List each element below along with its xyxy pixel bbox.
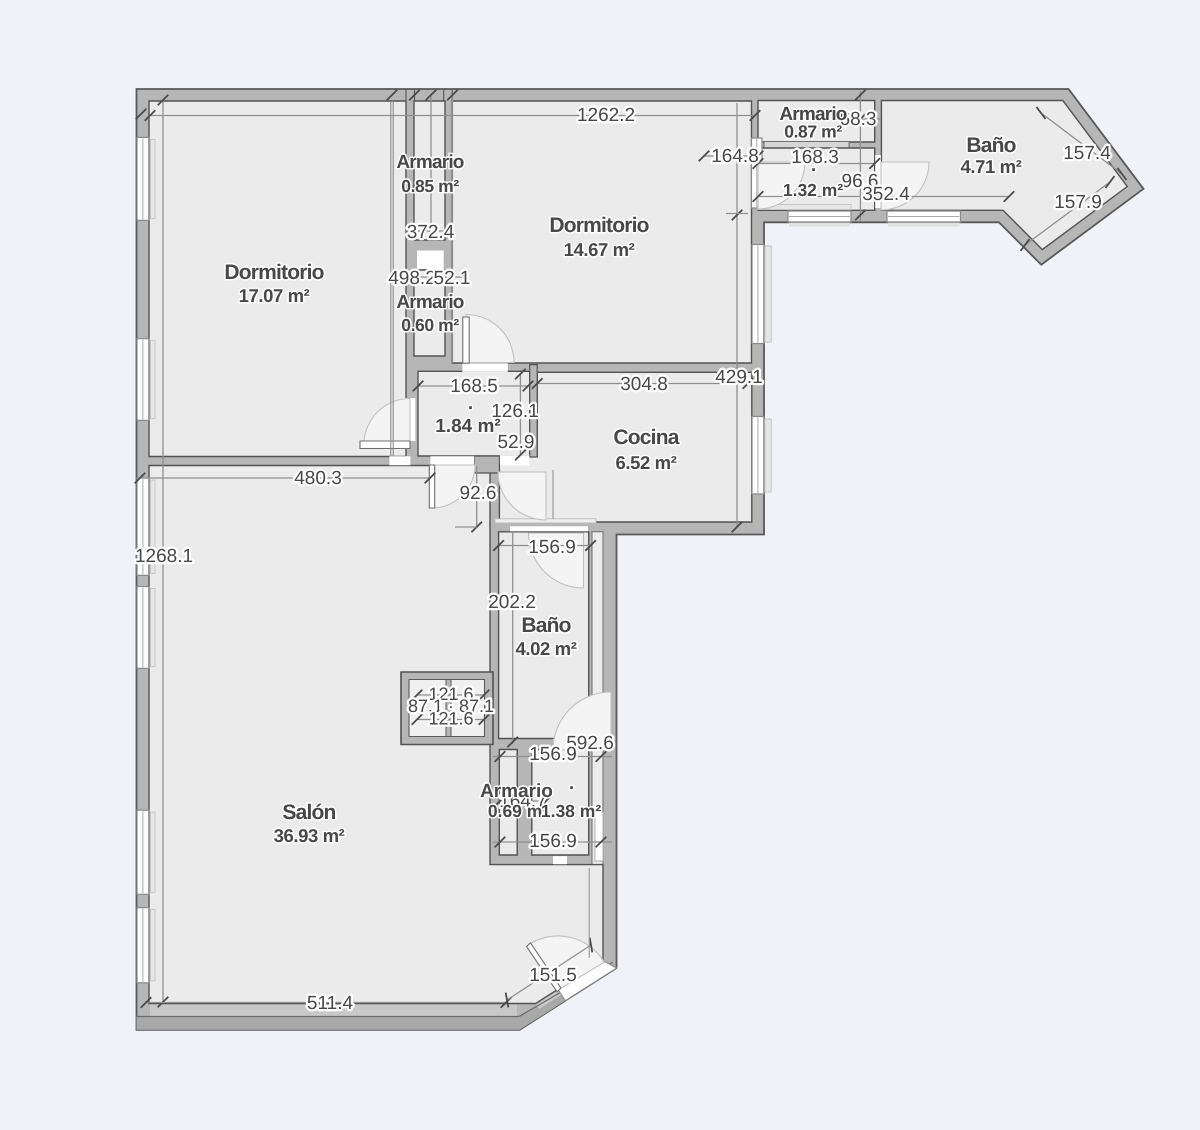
- svg-text:Armario: Armario: [480, 781, 553, 802]
- svg-text:151.5: 151.5: [529, 965, 577, 986]
- svg-text:1.32 m²: 1.32 m²: [783, 180, 843, 200]
- svg-text:168.5: 168.5: [450, 376, 498, 397]
- svg-text:1268.1: 1268.1: [135, 546, 193, 567]
- svg-text:36.93 m²: 36.93 m²: [274, 825, 345, 846]
- svg-text:·: ·: [811, 160, 817, 181]
- svg-text:157.4: 157.4: [1063, 143, 1111, 164]
- svg-text:0.60 m²: 0.60 m²: [401, 315, 459, 335]
- svg-text:1.84 m²: 1.84 m²: [435, 416, 500, 437]
- svg-text:Cocina: Cocina: [613, 426, 679, 449]
- svg-text:0.87 m²: 0.87 m²: [784, 122, 842, 142]
- svg-text:17.07 m²: 17.07 m²: [239, 285, 310, 306]
- svg-text:Armario: Armario: [396, 292, 463, 313]
- svg-text:164.8: 164.8: [711, 146, 759, 167]
- svg-text:156.9: 156.9: [529, 831, 577, 852]
- svg-text:429.1: 429.1: [715, 367, 763, 388]
- svg-text:Baño: Baño: [966, 134, 1015, 157]
- svg-text:Dormitorio: Dormitorio: [549, 214, 648, 237]
- svg-text:156.9: 156.9: [529, 744, 577, 765]
- svg-text:1262.2: 1262.2: [577, 105, 635, 126]
- svg-text:304.8: 304.8: [620, 374, 668, 395]
- svg-text:372.4: 372.4: [407, 222, 455, 243]
- svg-text:Dormitorio: Dormitorio: [224, 261, 323, 284]
- svg-text:4.02 m²: 4.02 m²: [516, 638, 577, 659]
- svg-text:157.9: 157.9: [1054, 192, 1102, 213]
- svg-text:52.9: 52.9: [498, 432, 535, 453]
- svg-text:1.38 m²: 1.38 m²: [541, 801, 601, 821]
- svg-text:4.71 m²: 4.71 m²: [961, 156, 1022, 177]
- svg-text:92.6: 92.6: [460, 483, 497, 504]
- svg-text:121.6: 121.6: [428, 709, 473, 729]
- svg-text:511.4: 511.4: [307, 993, 354, 1014]
- svg-text:0.85 m²: 0.85 m²: [401, 176, 459, 196]
- svg-text:·: ·: [569, 778, 575, 799]
- svg-text:480.3: 480.3: [294, 468, 342, 489]
- svg-text:202.2: 202.2: [488, 592, 536, 613]
- svg-text:·: ·: [468, 398, 474, 419]
- svg-text:Armario: Armario: [396, 152, 463, 173]
- svg-text:352.4: 352.4: [862, 184, 910, 205]
- svg-text:498.2: 498.2: [388, 268, 436, 289]
- svg-text:6.52 m²: 6.52 m²: [616, 452, 677, 473]
- svg-text:0.69 m²: 0.69 m²: [488, 801, 548, 821]
- svg-text:156.9: 156.9: [528, 537, 576, 558]
- svg-text:14.67 m²: 14.67 m²: [564, 239, 635, 260]
- svg-text:Salón: Salón: [282, 801, 335, 824]
- svg-text:Baño: Baño: [521, 614, 570, 637]
- svg-text:52.1: 52.1: [434, 268, 471, 289]
